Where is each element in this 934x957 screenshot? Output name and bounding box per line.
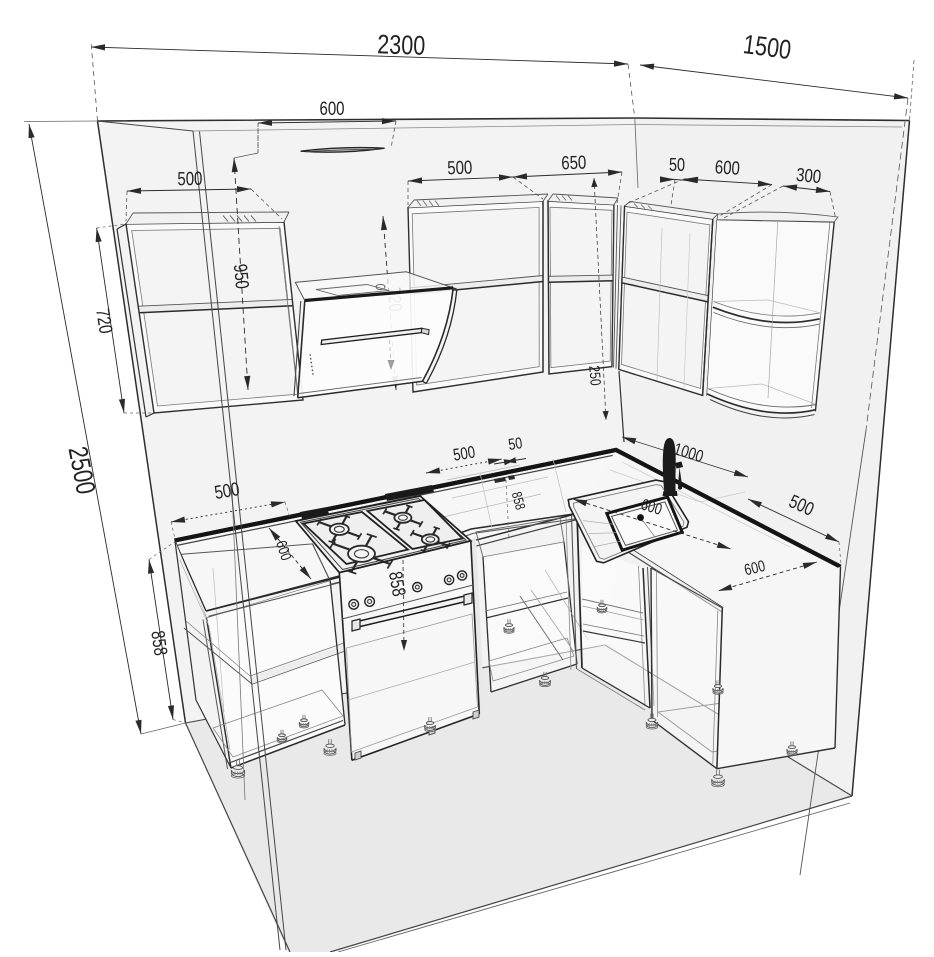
svg-text:600: 600 (320, 99, 345, 120)
svg-text:500: 500 (177, 169, 202, 190)
svg-text:50: 50 (669, 155, 685, 175)
svg-text:600: 600 (714, 157, 740, 179)
svg-text:950: 950 (229, 263, 252, 290)
svg-text:50: 50 (507, 435, 523, 454)
svg-text:2300: 2300 (377, 29, 426, 60)
svg-text:650: 650 (561, 153, 587, 175)
svg-text:720: 720 (91, 307, 116, 335)
svg-text:500: 500 (213, 479, 241, 504)
svg-text:1500: 1500 (741, 29, 793, 65)
svg-text:500: 500 (447, 158, 473, 180)
svg-text:500: 500 (452, 442, 477, 464)
svg-text:858: 858 (384, 570, 409, 598)
svg-text:250: 250 (585, 365, 604, 386)
svg-text:858: 858 (146, 629, 170, 657)
svg-text:300: 300 (795, 165, 822, 188)
